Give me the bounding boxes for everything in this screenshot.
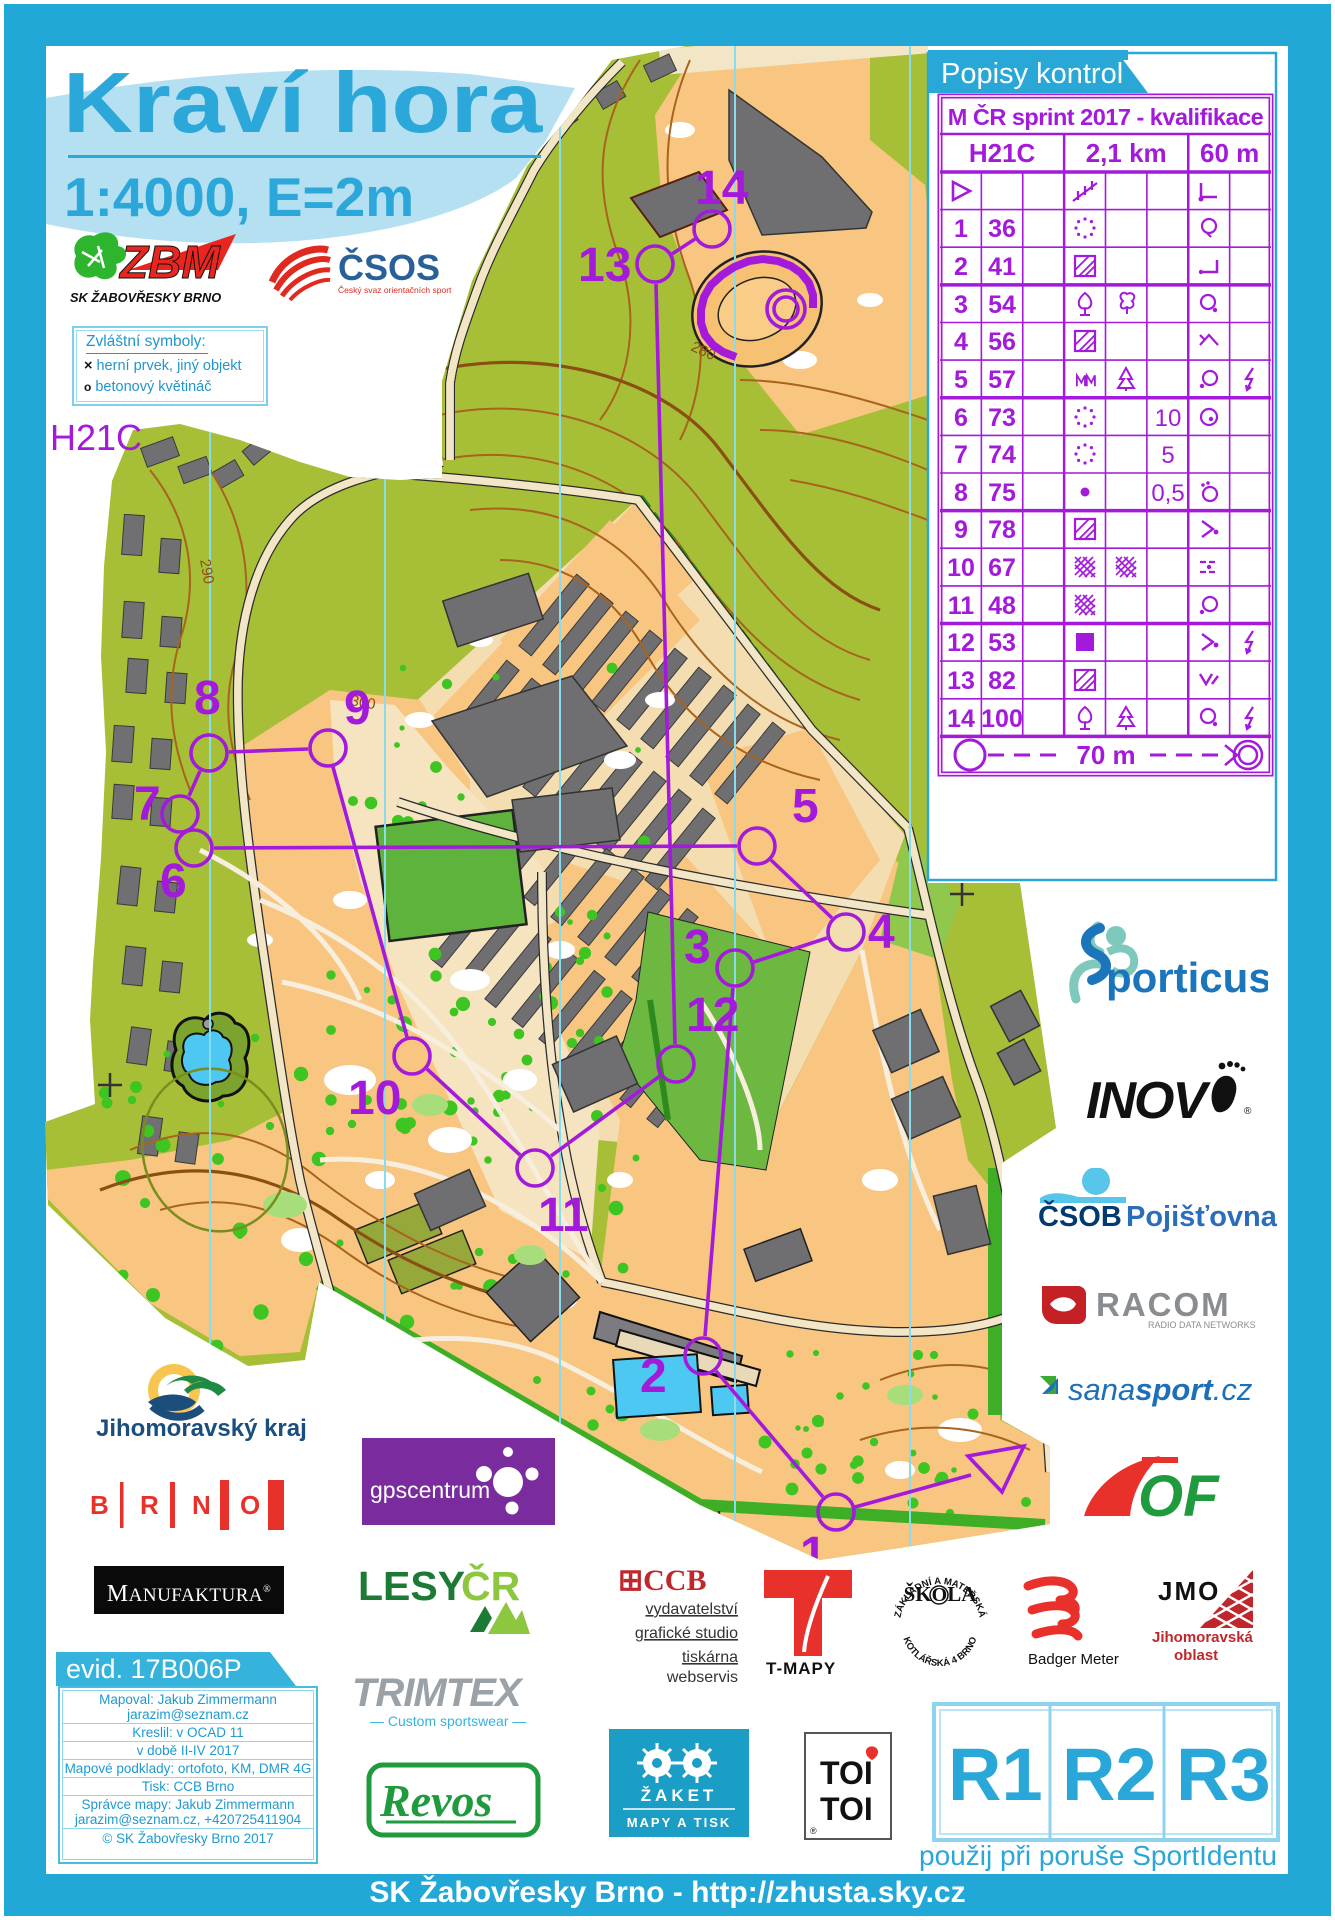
svg-text:8: 8 [954, 479, 968, 507]
svg-text:M ČR sprint 2017 - kvalifikace: M ČR sprint 2017 - kvalifikace [948, 103, 1264, 130]
svg-text:100: 100 [981, 705, 1023, 733]
svg-text:3: 3 [954, 291, 968, 319]
svg-text:78: 78 [988, 516, 1016, 544]
svg-text:sanasport.cz: sanasport.cz [1068, 1372, 1253, 1407]
svg-text:TOI: TOI [820, 1791, 873, 1827]
svg-text:ŽAKET: ŽAKET [641, 1786, 718, 1805]
svg-text:73: 73 [988, 404, 1016, 432]
svg-text:74: 74 [988, 441, 1016, 469]
svg-text:7: 7 [954, 441, 968, 469]
svg-text:T-MAPY: T-MAPY [766, 1659, 836, 1676]
svg-text:0,5: 0,5 [1151, 480, 1184, 507]
svg-text:Revos: Revos [379, 1775, 492, 1826]
svg-text:gpscentrum: gpscentrum [370, 1477, 490, 1503]
svg-text:57: 57 [988, 366, 1016, 394]
svg-text:vydavatelství: vydavatelství [646, 1601, 739, 1618]
svg-text:2,1 km: 2,1 km [1086, 138, 1167, 168]
svg-text:— Custom sportswear —: — Custom sportswear — [370, 1713, 526, 1729]
svg-text:B: B [90, 1490, 109, 1520]
svg-text:53: 53 [988, 629, 1016, 657]
svg-text:MAPY A TISK: MAPY A TISK [627, 1815, 732, 1830]
svg-text:R: R [140, 1490, 159, 1520]
svg-text:13: 13 [947, 667, 975, 695]
svg-text:54: 54 [988, 291, 1016, 319]
svg-text:12: 12 [947, 629, 975, 657]
svg-text:11: 11 [948, 592, 975, 620]
svg-text:®: ® [1244, 1106, 1252, 1117]
svg-text:14: 14 [947, 705, 975, 733]
svg-text:R2: R2 [1062, 1733, 1157, 1816]
svg-text:70 m: 70 m [1076, 740, 1135, 770]
svg-text:ČR: ČR [461, 1563, 520, 1609]
svg-text:OF: OF [1138, 1464, 1220, 1529]
svg-text:5: 5 [1161, 442, 1174, 469]
svg-text:grafické studio: grafické studio [635, 1625, 738, 1642]
svg-text:ČSOB: ČSOB [1038, 1199, 1122, 1233]
svg-text:Pojišťovna: Pojišťovna [1126, 1201, 1278, 1233]
svg-text:KOTLÁŘSKÁ 4 BRNO: KOTLÁŘSKÁ 4 BRNO [900, 1635, 979, 1669]
svg-text:RADIO DATA NETWORKS: RADIO DATA NETWORKS [1148, 1320, 1256, 1330]
svg-text:R1: R1 [948, 1733, 1043, 1816]
svg-text:RACOM: RACOM [1096, 1286, 1231, 1323]
svg-text:67: 67 [988, 554, 1016, 582]
svg-text:TRIMTEX: TRIMTEX [352, 1672, 524, 1715]
svg-text:4: 4 [954, 328, 968, 356]
svg-text:41: 41 [988, 253, 1016, 281]
svg-text:Jihomoravská: Jihomoravská [1152, 1629, 1254, 1646]
svg-text:60 m: 60 m [1200, 138, 1259, 168]
svg-text:INOV: INOV [1086, 1072, 1211, 1130]
svg-text:Jihomoravský kraj: Jihomoravský kraj [96, 1415, 307, 1442]
svg-text:2: 2 [954, 253, 968, 281]
svg-text:H21C: H21C [969, 138, 1036, 168]
svg-text:36: 36 [988, 215, 1016, 243]
svg-text:®: ® [810, 1826, 817, 1836]
svg-text:9: 9 [954, 516, 968, 544]
svg-text:5: 5 [954, 366, 968, 394]
svg-text:48: 48 [988, 592, 1016, 620]
svg-text:82: 82 [988, 667, 1016, 695]
svg-text:TOI: TOI [820, 1755, 873, 1791]
svg-text:oblast: oblast [1174, 1647, 1218, 1664]
svg-text:10: 10 [947, 554, 975, 582]
svg-text:75: 75 [988, 479, 1016, 507]
svg-text:N: N [192, 1490, 211, 1520]
svg-text:webservis: webservis [666, 1669, 738, 1682]
svg-text:10: 10 [1155, 405, 1182, 432]
svg-text:1: 1 [954, 215, 968, 243]
svg-text:⊞CCB: ⊞CCB [618, 1564, 706, 1597]
svg-text:Badger Meter: Badger Meter [1028, 1651, 1119, 1668]
svg-text:tiskárna: tiskárna [682, 1649, 738, 1666]
svg-text:evid. 17B006P: evid. 17B006P [66, 1654, 242, 1684]
svg-text:O: O [240, 1490, 260, 1520]
svg-text:6: 6 [954, 404, 968, 432]
svg-text:R3: R3 [1176, 1733, 1271, 1816]
svg-text:Popisy kontrol: Popisy kontrol [941, 58, 1123, 90]
svg-text:LESY: LESY [358, 1563, 465, 1609]
svg-text:JMO: JMO [1158, 1576, 1220, 1606]
svg-text:porticus: porticus [1106, 954, 1268, 1001]
svg-text:56: 56 [988, 328, 1016, 356]
